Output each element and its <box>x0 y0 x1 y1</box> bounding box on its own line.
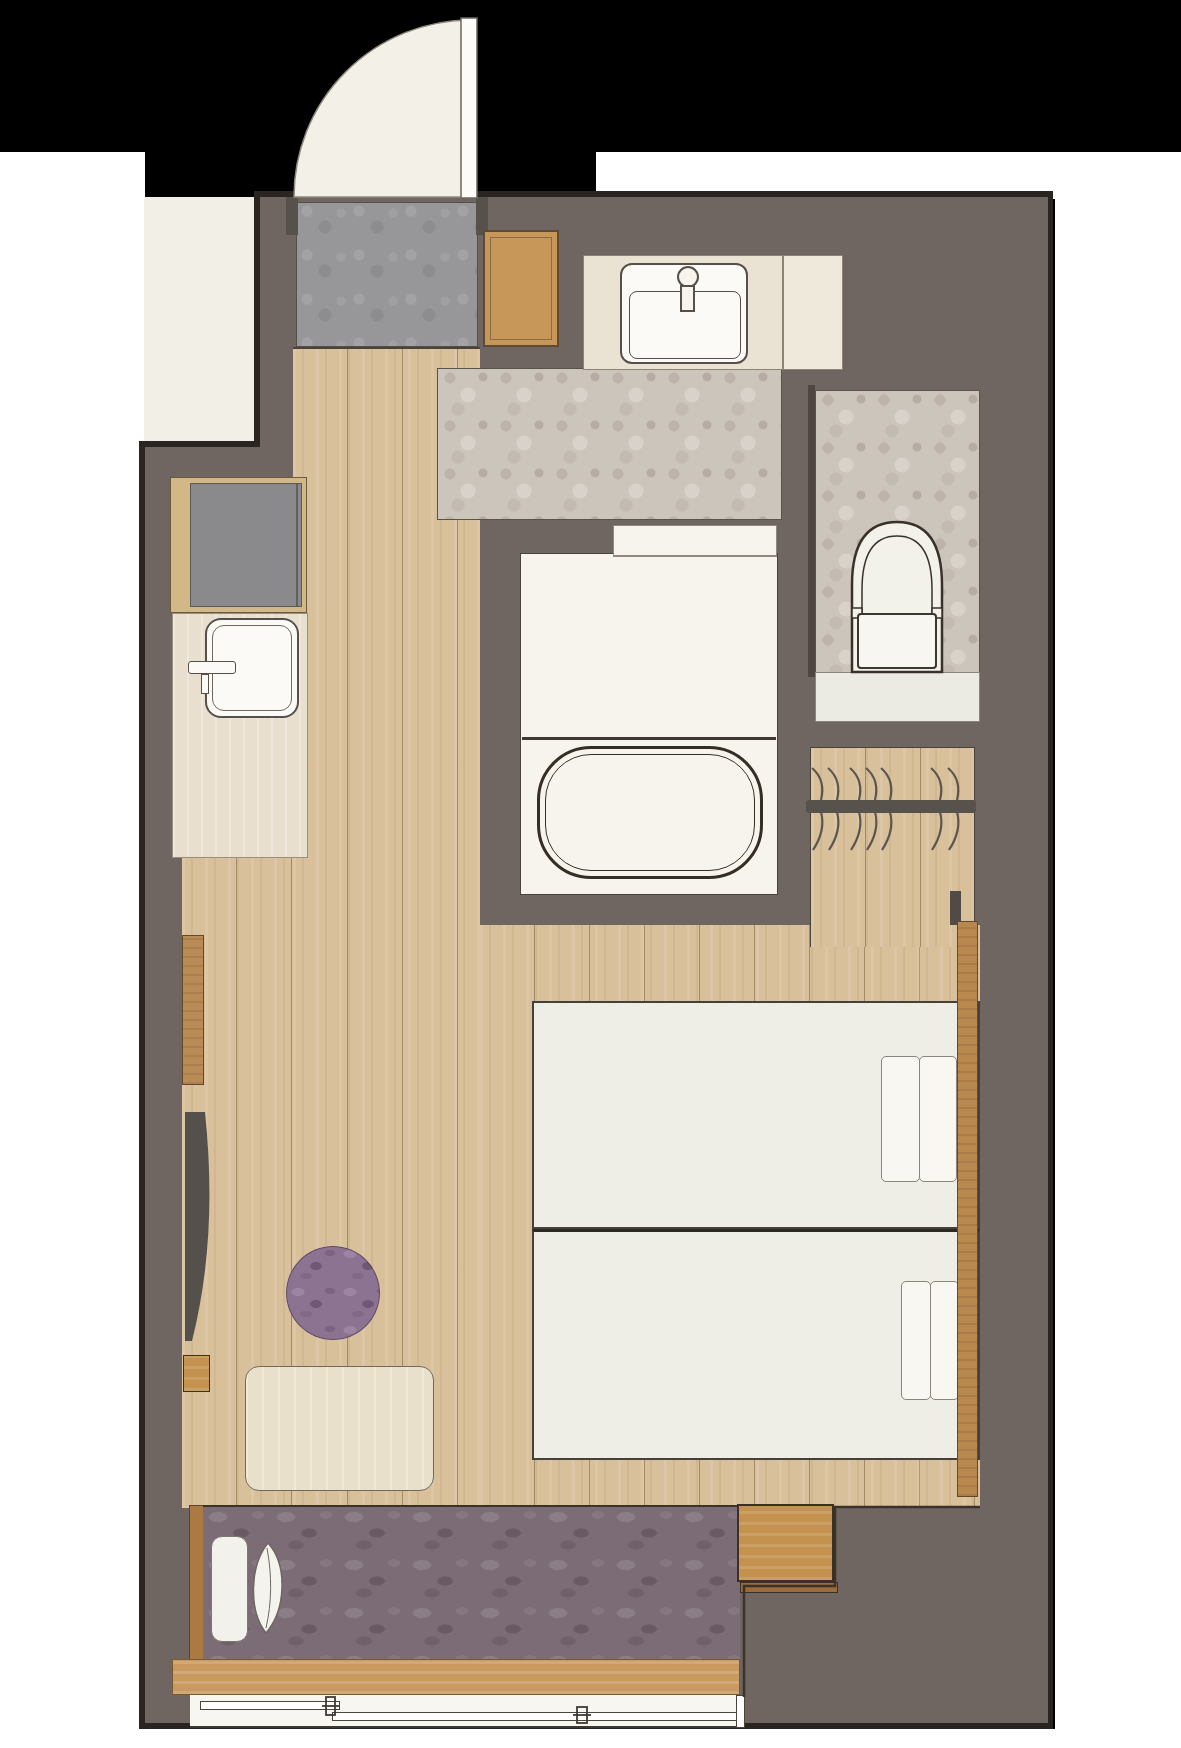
wall-contour-line <box>744 1507 980 1697</box>
entrance-door-swing <box>294 18 477 198</box>
bench-pillow-icon <box>253 1543 282 1633</box>
window-handle-icons <box>322 1697 591 1723</box>
vanity-faucet-icon <box>678 267 698 311</box>
tv-icon <box>185 1112 209 1341</box>
toilet-icon <box>852 522 942 672</box>
hangers-icon <box>812 768 961 850</box>
floor-plan <box>0 0 1181 1748</box>
entrance-door-leaf <box>461 18 477 198</box>
plan-drawing-overlay <box>0 0 1181 1748</box>
